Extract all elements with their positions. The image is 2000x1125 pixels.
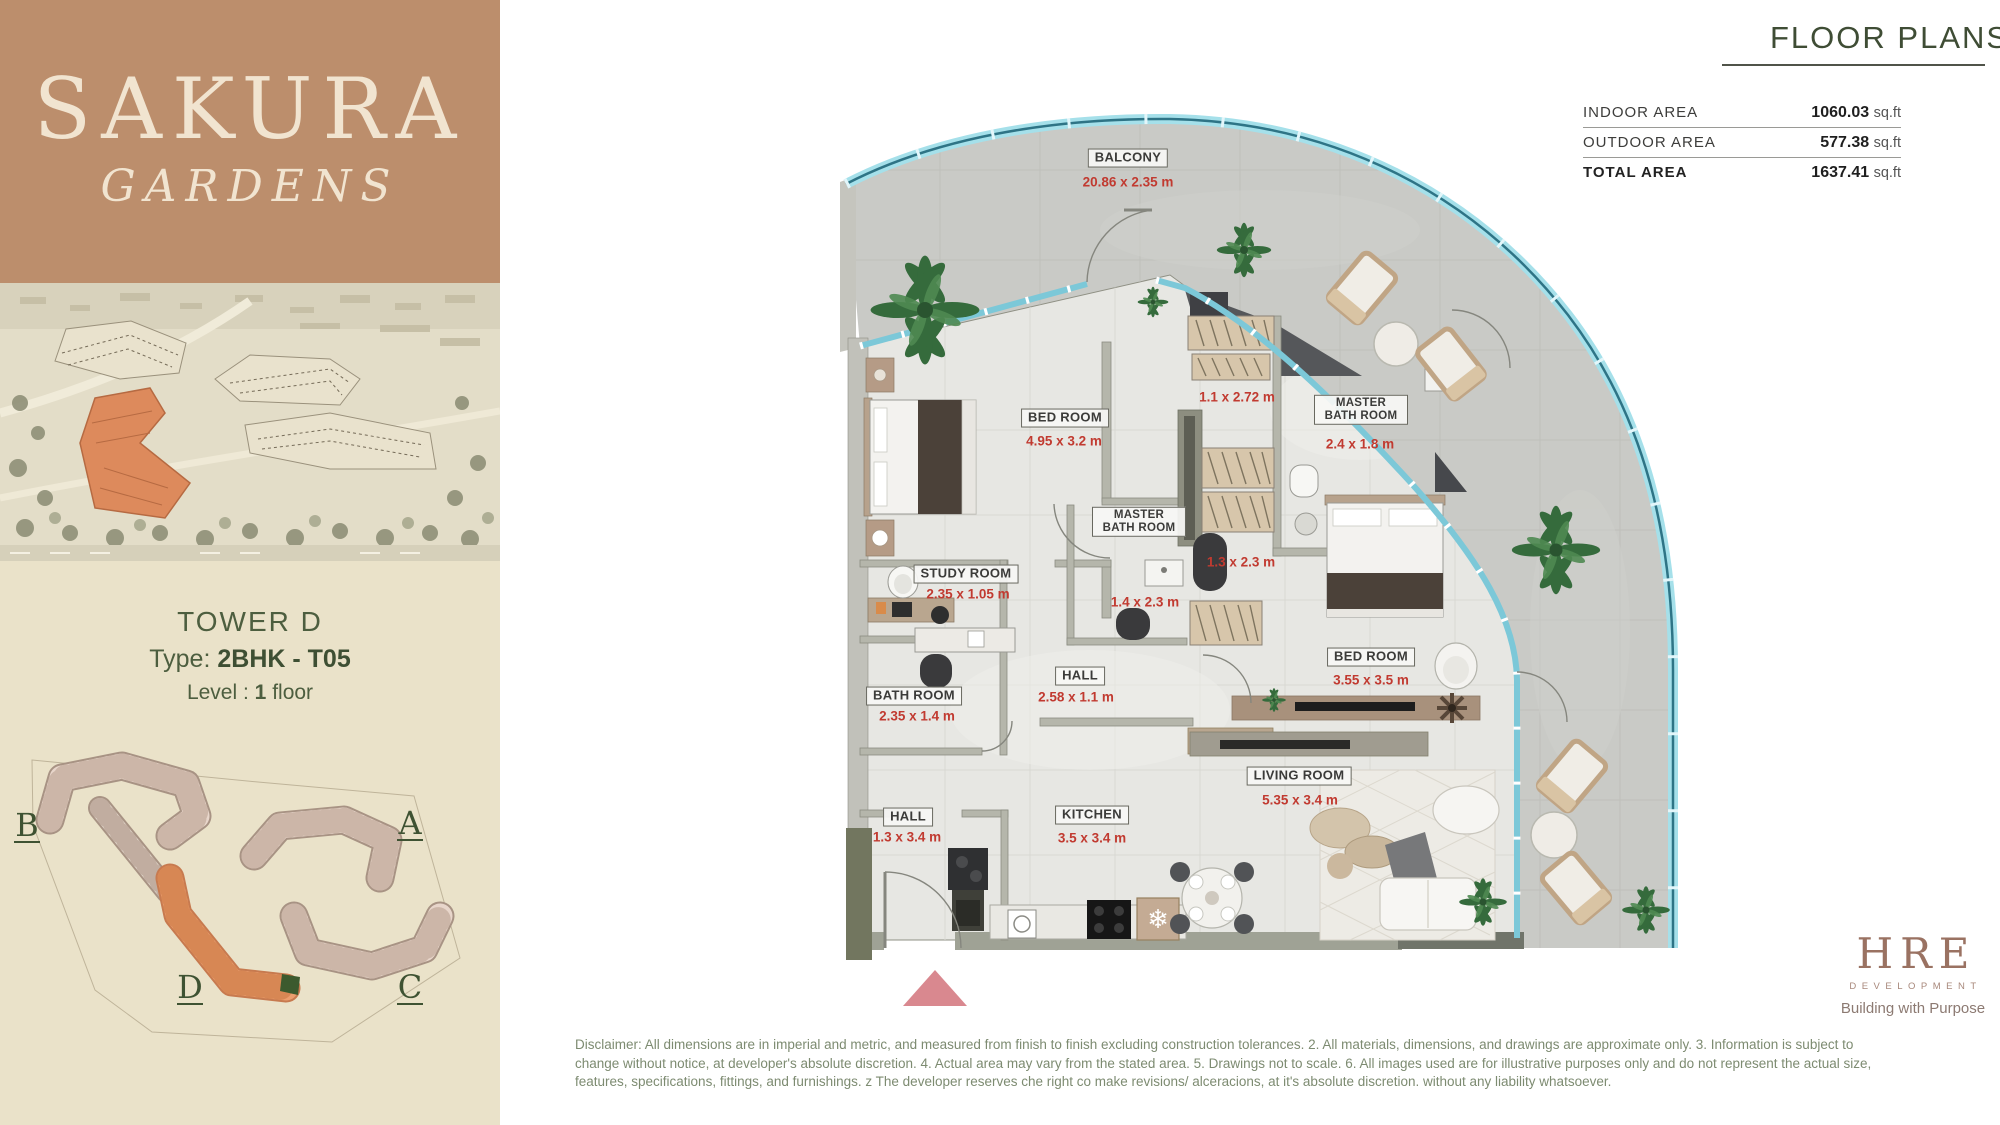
logo-tagline: Building with Purpose <box>1838 1000 1988 1017</box>
siteplan-label-b: B <box>15 806 39 844</box>
brand-subtitle: GARDENS <box>100 165 399 209</box>
tower-name: TOWER D <box>0 606 500 638</box>
tower-info: TOWER D Type: 2BHK - T05 Level : 1 floor <box>0 606 500 705</box>
siteplan-label-d: D <box>177 968 203 1006</box>
dim-annotation: 1.4 x 2.3 m <box>1111 595 1179 610</box>
entry-marker <box>903 970 967 1006</box>
bed-1 <box>864 398 976 516</box>
aerial-svg <box>0 283 500 561</box>
page: SAKURA GARDENS <box>0 0 2000 1125</box>
tower-type-label: Type: <box>149 645 210 673</box>
room-dim-bedroom-2: 3.55 x 3.5 m <box>1333 673 1409 688</box>
room-dim-hall-2: 2.58 x 1.1 m <box>1038 690 1114 705</box>
tower-level-value: 1 <box>255 681 267 704</box>
vanity <box>915 628 1015 652</box>
room-label-hall-1: HALL <box>883 808 933 827</box>
toilet <box>1290 465 1318 497</box>
developer-logo: HRE DEVELOPMENT Building with Purpose <box>1838 933 1988 1017</box>
title-underline <box>1722 64 1985 66</box>
room-dim-living: 5.35 x 3.4 m <box>1262 793 1338 808</box>
bed-2 <box>1325 495 1445 617</box>
room-dim-kitchen: 3.5 x 3.4 m <box>1058 831 1126 846</box>
room-label-hall-2: HALL <box>1055 667 1105 686</box>
room-label-living: LIVING ROOM <box>1247 767 1352 786</box>
decor-star <box>1437 693 1467 723</box>
tower-level-label: Level : <box>187 681 249 704</box>
brand-title: SAKURA <box>34 67 467 151</box>
room-label-kitchen: KITCHEN <box>1055 806 1129 825</box>
room-label-master-bath-1: MASTER BATH ROOM <box>1092 507 1186 537</box>
tower-type-value: 2BHK - T05 <box>217 645 350 673</box>
siteplan-key: B A D C <box>0 730 500 1125</box>
tower-type: Type: 2BHK - T05 <box>0 645 500 674</box>
area-unit: sq.ft <box>1874 135 1901 151</box>
area-unit: sq.ft <box>1874 105 1901 121</box>
room-label-balcony: BALCONY <box>1088 149 1168 168</box>
living-room-set <box>1310 770 1499 940</box>
room-dim-hall-1: 1.3 x 3.4 m <box>873 830 941 845</box>
area-unit: sq.ft <box>1874 165 1901 181</box>
area-value: 577.38 <box>1820 134 1869 151</box>
brand-header: SAKURA GARDENS <box>0 0 500 283</box>
floorplan: ❄ <box>840 110 1700 1010</box>
room-label-bathroom: BATH ROOM <box>866 687 962 706</box>
aerial-render-image <box>0 283 500 561</box>
page-title: FLOOR PLANS <box>1770 20 1985 56</box>
room-dim-study: 2.35 x 1.05 m <box>926 587 1009 602</box>
dining-set <box>1170 862 1254 934</box>
tower-level-suffix: floor <box>272 681 313 704</box>
disclaimer-text: Disclaimer: All dimensions are in imperi… <box>575 1036 1900 1092</box>
siteplan-svg: B A D C <box>0 730 500 1125</box>
room-dim-bedroom-1: 4.95 x 3.2 m <box>1026 434 1102 449</box>
snowflake-icon: ❄ <box>1147 904 1169 934</box>
room-label-bedroom-1: BED ROOM <box>1021 409 1109 428</box>
dim-annotation: 1.3 x 2.3 m <box>1207 555 1275 570</box>
desk-chair <box>931 606 949 624</box>
exterior-wall-dark <box>846 828 872 960</box>
room-label-bedroom-2: BED ROOM <box>1327 648 1415 667</box>
siteplan-label-c: C <box>398 968 422 1006</box>
tower-level: Level : 1 floor <box>0 681 500 705</box>
room-dim-master-bath-2: 2.4 x 1.8 m <box>1326 437 1394 452</box>
toilet <box>1116 608 1150 640</box>
room-label-master-bath-2: MASTER BATH ROOM <box>1314 395 1408 425</box>
logo-name: HRE <box>1838 933 1988 975</box>
area-value: 1637.41 <box>1811 164 1869 181</box>
logo-division: DEVELOPMENT <box>1838 981 1988 992</box>
room-dim-bathroom: 2.35 x 1.4 m <box>879 709 955 724</box>
sink <box>1295 513 1317 535</box>
sidebar: SAKURA GARDENS <box>0 0 500 1125</box>
area-value: 1060.03 <box>1811 104 1869 121</box>
dim-annotation: 1.1 x 2.72 m <box>1199 390 1275 405</box>
room-dim-balcony: 20.86 x 2.35 m <box>1083 175 1174 190</box>
siteplan-label-a: A <box>397 804 422 842</box>
room-label-study: STUDY ROOM <box>914 565 1019 584</box>
